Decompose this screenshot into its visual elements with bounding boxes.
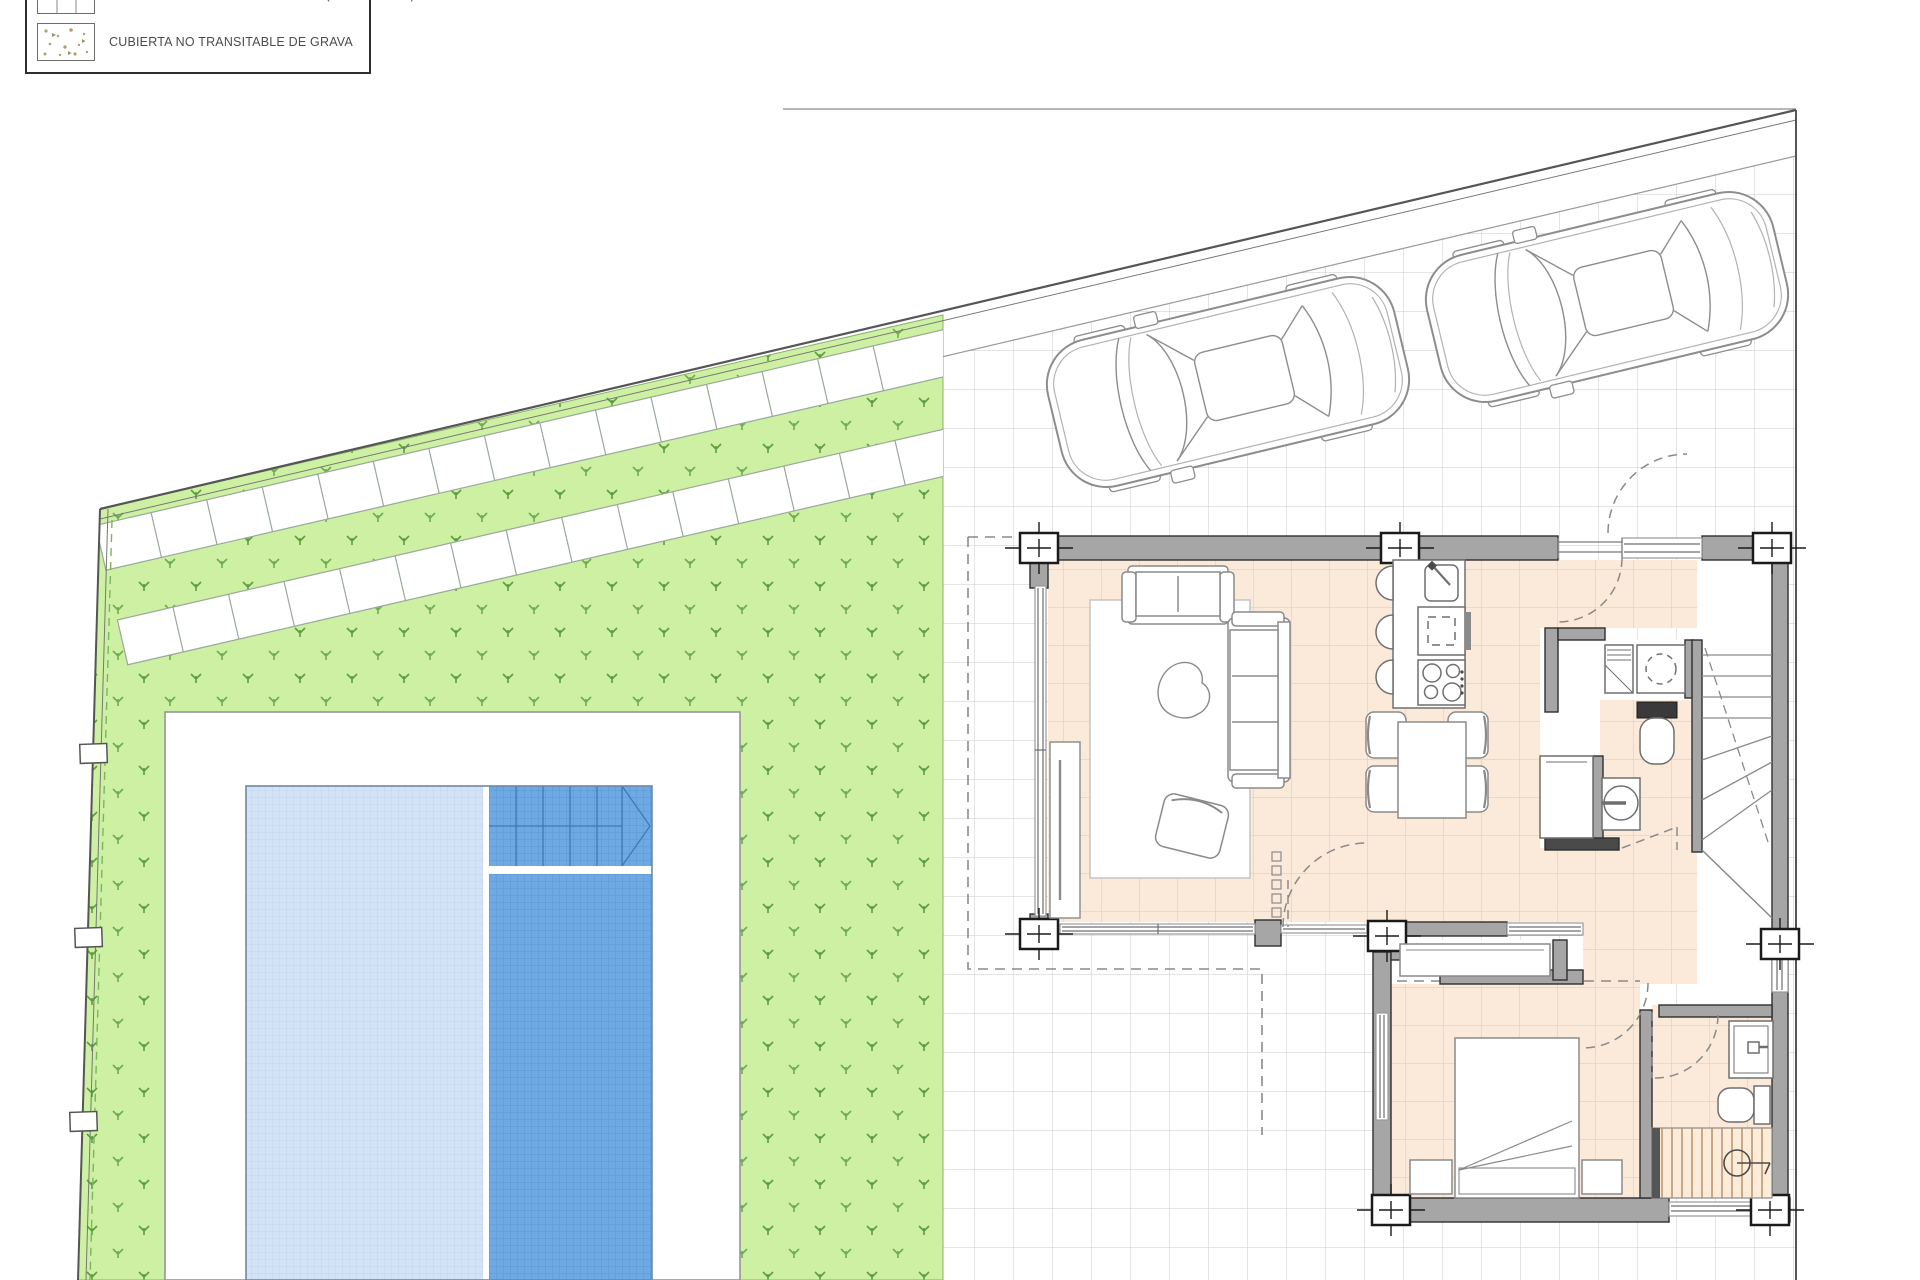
oven <box>1418 607 1471 655</box>
pool-area <box>165 712 740 1280</box>
loveseat <box>1122 566 1234 624</box>
nightstand-left <box>1410 1160 1452 1194</box>
toilet <box>1718 1088 1754 1122</box>
kitchen-sink <box>1425 561 1458 601</box>
swimming-pool <box>246 786 652 1280</box>
sofa <box>1228 612 1290 788</box>
floor-plan-canvas <box>0 0 1920 1280</box>
legend-box: ENLOSADO CERÁMICO EXTERIOR (Antideslizan… <box>25 0 371 74</box>
nightstand-right <box>1582 1160 1622 1194</box>
bed <box>1455 1038 1579 1198</box>
living-south-slider <box>1060 924 1367 934</box>
dryer <box>1637 645 1685 693</box>
stairs-lower <box>1652 1128 1772 1198</box>
wardrobe <box>1400 944 1550 976</box>
tall-cabinet <box>1540 756 1593 838</box>
cooktop <box>1418 660 1465 705</box>
toilet-tank <box>1754 1086 1770 1124</box>
living-west-slider <box>1035 586 1046 916</box>
cistern <box>1637 702 1677 718</box>
hall-south-window <box>1507 923 1583 935</box>
kitchen <box>1376 560 1471 708</box>
legend-label-gravel: CUBIERTA NO TRANSITABLE DE GRAVA <box>109 35 353 49</box>
pool-separator-band <box>489 866 652 874</box>
bedroom-west-window <box>1376 1013 1388 1120</box>
shower-tray <box>1729 1021 1773 1078</box>
legend-label-ceramic: ENLOSADO CERÁMICO EXTERIOR (Antideslizan… <box>109 0 415 2</box>
bedroom-south-window <box>1669 1202 1753 1216</box>
tv-sideboard <box>1050 742 1080 918</box>
dining-table <box>1398 722 1466 818</box>
legend-item-ceramic: ENLOSADO CERÁMICO EXTERIOR (Antideslizan… <box>37 0 369 18</box>
site-plan-page: ENLOSADO CERÁMICO EXTERIOR (Antideslizan… <box>0 0 1920 1280</box>
kitchen-stools <box>1376 566 1393 694</box>
ceramic-tile-swatch-icon <box>37 0 95 14</box>
legend-item-gravel: CUBIERTA NO TRANSITABLE DE GRAVA <box>37 18 369 66</box>
entry-window <box>1622 538 1702 558</box>
gravel-swatch-icon <box>37 23 95 61</box>
wc-toilet <box>1640 718 1674 764</box>
